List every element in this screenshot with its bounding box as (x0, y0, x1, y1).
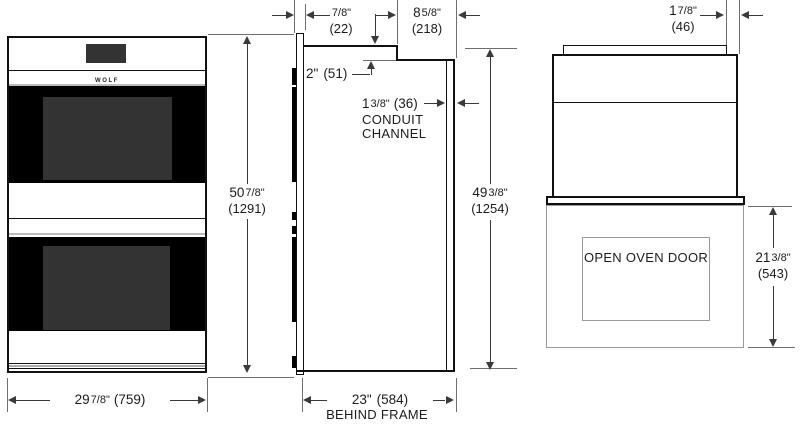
dim-tail-toprear-left (376, 15, 388, 16)
dim-line-step-top (375, 14, 376, 37)
arrowhead-left (457, 99, 465, 107)
dim-line-side-height-lower (490, 220, 491, 363)
arrowhead-left (303, 396, 311, 404)
dim-tail-lid-right (749, 15, 763, 16)
dim-door-depth: 213/8" (543) (744, 250, 800, 281)
ext-line-front-bottom (208, 377, 294, 378)
dim-tail-frame-left (272, 15, 286, 16)
side-bottom-line (296, 370, 455, 372)
lower-door-trim (9, 233, 205, 235)
side-control-edge (292, 68, 296, 85)
dim-depth: 23"(584) (327, 392, 433, 408)
mid-band-line (9, 218, 205, 219)
kickplate-line-2 (9, 365, 205, 367)
arrowhead-left (458, 11, 466, 19)
dim-line-front-height-lower (247, 219, 248, 366)
control-display (86, 44, 126, 63)
side-kick-edge (292, 356, 296, 368)
ext-line-step (397, 0, 398, 44)
side-lower-door-edge (292, 237, 296, 322)
ext-line-front-left (7, 378, 8, 412)
dim-line-side-height-upper (490, 56, 491, 184)
dim-frame-proud: 7/8" (22) (318, 5, 364, 36)
arrowhead-left (741, 11, 749, 19)
side-mid-edge-2 (292, 226, 296, 234)
dim-leader-step (352, 74, 370, 75)
open-view-body-divider (554, 102, 736, 103)
ext-line-frame-front (294, 0, 295, 33)
dim-tail-toprear-right (466, 15, 480, 16)
dim-line-door-lower (773, 286, 774, 340)
side-mid-edge-1 (292, 212, 296, 220)
open-oven-door-label: OPEN OVEN DOOR (583, 250, 709, 265)
side-rear-wall-outer (453, 59, 455, 372)
arrowhead-left (306, 11, 314, 19)
dim-tail-conduit-right (465, 103, 479, 104)
side-front-frame (296, 33, 304, 375)
arrowhead-right (198, 396, 206, 404)
dim-line-door-upper (773, 214, 774, 248)
ext-line-door-bottom (748, 347, 795, 348)
open-oven-door-inner: OPEN OVEN DOOR (582, 237, 710, 321)
brand-band: WOLF (9, 71, 205, 84)
arrowhead-right (286, 11, 294, 19)
ext-line-depth-right (456, 378, 457, 412)
conduit-label-line1: CONDUIT (362, 112, 423, 127)
ext-line-lid-edge (726, 0, 727, 45)
side-rear-wall-inner (446, 61, 447, 372)
kickplate-line-3 (9, 368, 205, 369)
arrowhead-left (8, 396, 16, 404)
dim-front-height: 507/8" (1291) (215, 185, 279, 216)
front-view-oven-outline: WOLF (7, 36, 207, 373)
dim-side-height: 493/8" (1254) (458, 185, 522, 216)
kickplate-line-1 (9, 363, 205, 364)
lower-oven-window (43, 246, 170, 330)
ext-line-rear-top (456, 0, 457, 58)
dim-step: 2"(51) (306, 66, 347, 82)
ext-line-depth-left (302, 378, 303, 412)
dim-conduit: 13/8"(36) (362, 96, 418, 112)
arrowhead-down (243, 365, 251, 373)
side-top-line-front (304, 45, 398, 47)
ext-line-front-top (208, 34, 294, 35)
dim-line-front-height-upper (247, 43, 248, 184)
arrowhead-right (716, 11, 724, 19)
dim-front-width: 297/8"(759) (50, 392, 170, 408)
behind-frame-label: BEHIND FRAME (310, 407, 444, 422)
installation-diagram: WOLF 507/8" (1291) 297/8"(759) (0, 0, 800, 425)
arrowhead-down (769, 339, 777, 347)
side-upper-door-edge (292, 87, 296, 182)
open-view-body (552, 54, 738, 198)
ext-line-front-right (207, 378, 208, 412)
dim-line-step-bottom (371, 68, 372, 75)
arrowhead-right (446, 396, 454, 404)
arrowhead-down (371, 36, 379, 44)
upper-oven-window (43, 97, 172, 180)
dim-top-rear: 85/8" (218) (400, 5, 454, 36)
ext-line-body-edge (739, 0, 740, 54)
arrowhead-right (437, 99, 445, 107)
conduit-label-line2: CHANNEL (362, 126, 426, 141)
arrowhead-right (388, 11, 396, 19)
open-view-door-hinge-slab (546, 196, 745, 205)
dim-lid-inset: 17/8" (46) (654, 3, 712, 34)
dim-tail-conduit-left (424, 103, 437, 104)
arrowhead-down (486, 362, 494, 370)
